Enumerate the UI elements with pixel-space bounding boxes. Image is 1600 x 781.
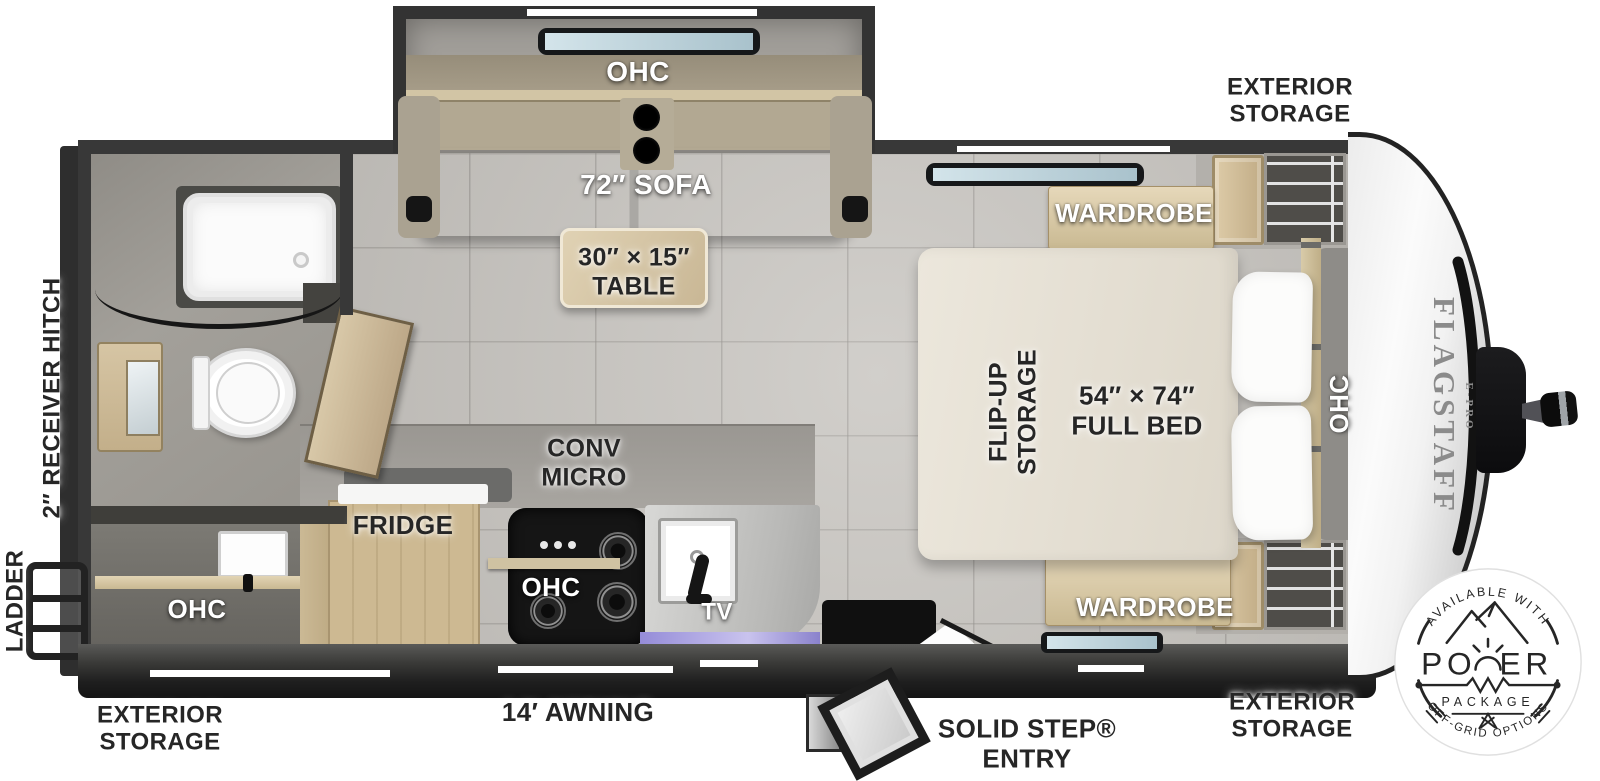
label-ladder: LADDER — [1, 550, 28, 652]
label-wardrobe-bottom: WARDROBE — [1076, 593, 1234, 623]
label-fridge: FRIDGE — [353, 511, 454, 541]
exterior-storage-rack-top — [1264, 153, 1346, 245]
bedroom-window-lower — [1041, 632, 1163, 653]
kitchen-shelf — [488, 558, 620, 569]
awning-marker — [1078, 665, 1144, 672]
fridge-top — [338, 484, 488, 504]
label-exterior-storage-top: EXTERIOR STORAGE — [1227, 74, 1353, 129]
label-conv-micro: CONV MICRO — [541, 435, 626, 492]
label-receiver-hitch: 2″ RECEIVER HITCH — [38, 278, 65, 519]
label-exterior-storage-bottom: EXTERIOR STORAGE — [1229, 689, 1355, 744]
bathroom-wall — [340, 140, 353, 315]
exterior-storage-rack-bottom — [1264, 540, 1346, 630]
slide-marker — [527, 9, 757, 16]
awning-marker — [498, 666, 673, 673]
label-table: 30″ × 15″ TABLE — [578, 244, 690, 301]
stove-burner — [597, 582, 637, 622]
console-cupholder — [633, 137, 660, 164]
cupholder — [406, 196, 432, 222]
ladder-rung — [33, 625, 81, 632]
toilet-seat — [216, 362, 280, 424]
mirror — [126, 360, 160, 436]
wall-top-left — [78, 140, 406, 154]
label-bed-ohc: OHC — [1325, 375, 1355, 434]
brand-sub-logo: E-PRO — [1463, 382, 1475, 431]
propane-cover — [1476, 347, 1526, 473]
label-rear-ohc: OHC — [168, 595, 227, 625]
tub-drain — [293, 252, 309, 268]
label-flip-up-storage: FLIP-UP STORAGE — [985, 349, 1042, 475]
stove-knob — [554, 541, 562, 549]
bedroom-window-glass — [933, 168, 1137, 181]
console-cupholder — [633, 104, 660, 131]
pillow — [1231, 405, 1313, 540]
label-wardrobe-top: WARDROBE — [1055, 199, 1213, 229]
slide-window-glass — [545, 33, 753, 50]
ladder-rung — [33, 595, 81, 602]
rear-sink — [218, 531, 288, 578]
slide-window — [538, 28, 760, 55]
pillow — [1231, 271, 1313, 402]
power-package-badge: AVAILABLE WITH PO ER PACKAGE OFF-GRID OP… — [1392, 566, 1584, 758]
label-tv: TV — [701, 598, 732, 625]
nightstand-top — [1212, 155, 1264, 245]
label-exterior-storage-rear: EXTERIOR STORAGE — [97, 702, 223, 757]
bedroom-window-lower-glass — [1047, 636, 1157, 649]
label-bed: 54″ × 74″ FULL BED — [1071, 381, 1202, 440]
cupholder — [842, 196, 868, 222]
badge-power-right: ER — [1500, 645, 1554, 681]
awning-rail-marker — [957, 146, 1170, 152]
bedroom-window — [926, 163, 1144, 186]
label-kitchen-ohc: OHC — [522, 573, 581, 603]
label-sofa: 72″ SOFA — [580, 169, 712, 201]
brand-logo: FLAGSTAFF — [1426, 297, 1462, 515]
awning-marker — [150, 670, 390, 677]
label-awning: 14′ AWNING — [502, 698, 654, 728]
label-entry: SOLID STEP® ENTRY — [938, 714, 1116, 773]
toilet-tank — [192, 356, 210, 430]
bathroom-wall-bottom — [91, 506, 347, 524]
rear-shelf — [95, 576, 310, 589]
badge-package-text: PACKAGE — [1442, 695, 1535, 709]
stove-knob — [568, 541, 576, 549]
label-slide-ohc: OHC — [606, 56, 669, 88]
badge-power-left: PO — [1421, 645, 1476, 681]
stove-knob — [540, 541, 548, 549]
furnace — [822, 600, 936, 650]
floorplan-canvas: FLAGSTAFF E-PRO 2″ RECEIVER HITCH LADDER… — [0, 0, 1600, 781]
awning-marker — [700, 660, 758, 667]
hitch-jack-knob — [1539, 390, 1578, 428]
rear-faucet — [243, 574, 253, 592]
